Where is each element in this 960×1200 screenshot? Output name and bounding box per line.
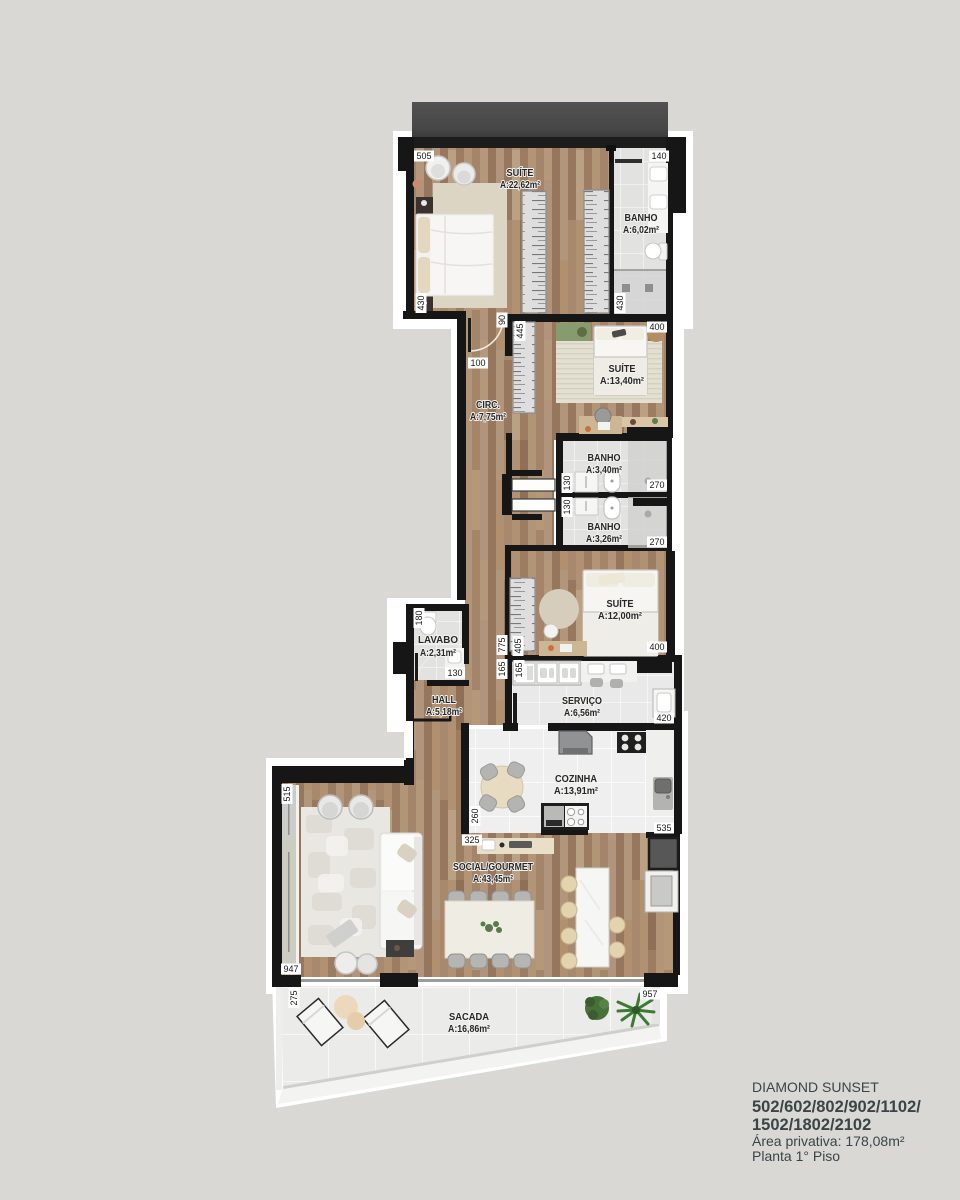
svg-text:HALL: HALL <box>432 694 456 706</box>
svg-text:SOCIAL/GOURMET: SOCIAL/GOURMET <box>453 861 533 873</box>
svg-text:SUÍTE: SUÍTE <box>507 166 534 179</box>
svg-text:DIAMOND SUNSET: DIAMOND SUNSET <box>752 1079 879 1095</box>
svg-text:A:3,26m²: A:3,26m² <box>586 534 623 545</box>
svg-text:260: 260 <box>470 808 480 823</box>
svg-text:130: 130 <box>562 475 572 490</box>
svg-text:A:5,18m²: A:5,18m² <box>426 707 463 718</box>
svg-text:1502/1802/2102: 1502/1802/2102 <box>752 1116 871 1134</box>
svg-text:SACADA: SACADA <box>449 1011 489 1023</box>
svg-text:SERVIÇO: SERVIÇO <box>562 695 602 707</box>
svg-text:A:13,91m²: A:13,91m² <box>554 786 599 797</box>
svg-text:A:13,40m²: A:13,40m² <box>600 376 645 387</box>
svg-text:325: 325 <box>464 835 479 845</box>
svg-text:180: 180 <box>414 610 424 625</box>
svg-text:775: 775 <box>497 637 507 652</box>
svg-text:445: 445 <box>515 323 525 338</box>
svg-text:Planta 1° Piso: Planta 1° Piso <box>752 1148 840 1164</box>
svg-text:505: 505 <box>416 151 431 161</box>
svg-text:A:12,00m²: A:12,00m² <box>598 611 643 622</box>
svg-text:A:16,86m²: A:16,86m² <box>448 1024 491 1035</box>
svg-text:535: 535 <box>656 823 671 833</box>
svg-text:275: 275 <box>289 990 299 1005</box>
svg-text:90: 90 <box>497 315 507 325</box>
svg-text:130: 130 <box>447 668 462 678</box>
svg-text:430: 430 <box>416 295 426 310</box>
svg-text:SUÍTE: SUÍTE <box>609 362 636 375</box>
svg-text:502/602/802/902/1102/: 502/602/802/902/1102/ <box>752 1098 921 1116</box>
svg-text:130: 130 <box>562 499 572 514</box>
svg-text:A:6,02m²: A:6,02m² <box>623 225 660 236</box>
svg-text:165: 165 <box>497 661 507 676</box>
svg-text:270: 270 <box>649 537 664 547</box>
svg-text:100: 100 <box>470 358 485 368</box>
svg-text:A:43,45m²: A:43,45m² <box>473 874 514 885</box>
svg-text:BANHO: BANHO <box>588 521 621 533</box>
svg-text:400: 400 <box>649 642 664 652</box>
svg-text:SUÍTE: SUÍTE <box>607 597 634 610</box>
svg-text:947: 947 <box>283 964 298 974</box>
svg-text:A:6,56m²: A:6,56m² <box>564 708 601 719</box>
svg-text:A:2,31m²: A:2,31m² <box>420 648 457 659</box>
svg-text:270: 270 <box>649 480 664 490</box>
svg-text:957: 957 <box>642 989 657 999</box>
svg-text:A:3,40m²: A:3,40m² <box>586 465 623 476</box>
svg-text:515: 515 <box>282 786 292 801</box>
svg-text:A:7,75m²: A:7,75m² <box>470 412 507 423</box>
svg-text:400: 400 <box>649 322 664 332</box>
svg-text:LAVABO: LAVABO <box>418 634 458 646</box>
svg-text:BANHO: BANHO <box>588 452 621 464</box>
svg-text:BANHO: BANHO <box>625 212 658 224</box>
svg-text:420: 420 <box>656 713 671 723</box>
svg-text:CIRC.: CIRC. <box>476 399 500 411</box>
svg-text:140: 140 <box>651 151 666 161</box>
svg-text:A:22,62m²: A:22,62m² <box>500 180 541 191</box>
svg-text:405: 405 <box>513 638 523 653</box>
svg-text:Área privativa: 178,08m²: Área privativa: 178,08m² <box>752 1133 905 1149</box>
svg-text:COZINHA: COZINHA <box>555 773 597 785</box>
svg-text:165: 165 <box>514 662 524 677</box>
svg-text:430: 430 <box>615 295 625 310</box>
